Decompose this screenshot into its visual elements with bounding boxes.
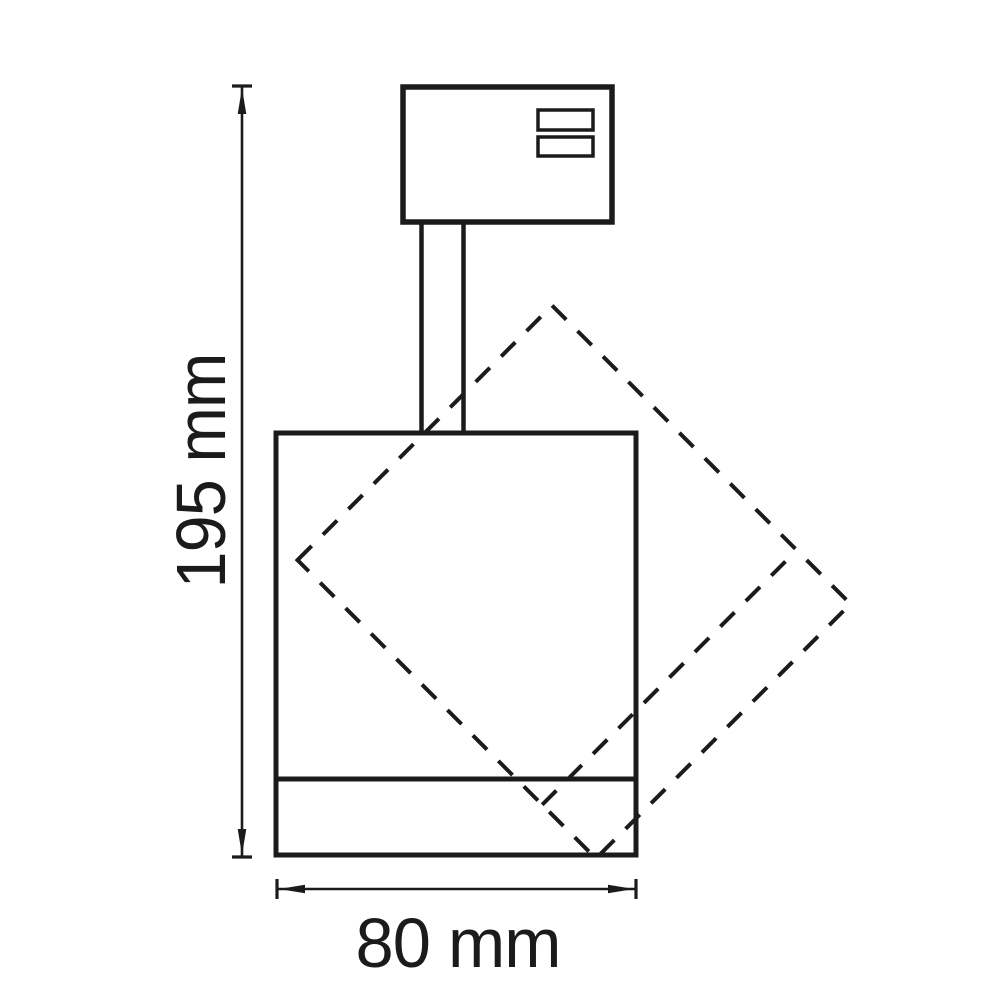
rotated-body-dashed-bezel-line bbox=[542, 550, 797, 805]
arrow-left-icon bbox=[279, 885, 305, 894]
arrow-up-icon bbox=[238, 88, 247, 114]
width-dimension: 80 mm bbox=[277, 879, 636, 982]
height-dimension: 195 mm bbox=[162, 86, 252, 857]
rotation-range-dashed-outline bbox=[298, 306, 851, 859]
height-dimension-label: 195 mm bbox=[162, 354, 240, 589]
technical-drawing-canvas: 195 mm 80 mm bbox=[0, 0, 1000, 1000]
adapter-slot-top bbox=[538, 110, 593, 130]
width-dimension-label: 80 mm bbox=[356, 904, 561, 982]
width-dimension-lines bbox=[277, 879, 636, 899]
lamp-body bbox=[276, 433, 636, 855]
arrow-right-icon bbox=[608, 885, 634, 894]
fixture-outline-group bbox=[276, 87, 636, 855]
arrow-down-icon bbox=[238, 829, 247, 855]
adapter-slot-bottom bbox=[538, 137, 593, 156]
dimension-drawing-svg: 195 mm 80 mm bbox=[0, 0, 1000, 1000]
